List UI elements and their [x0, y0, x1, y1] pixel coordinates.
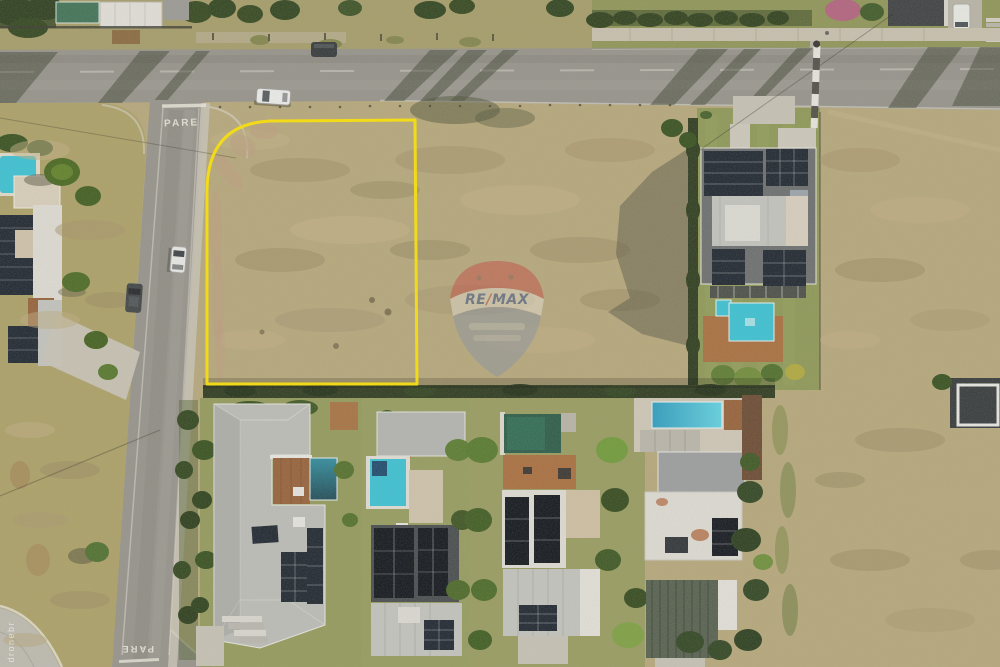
- photo-grain-overlay: [0, 0, 1000, 667]
- scene-canvas: PARE PARE: [0, 0, 1000, 667]
- photo-credit-watermark: dronebr: [6, 621, 16, 663]
- aerial-photo-scene: PARE PARE: [0, 0, 1000, 667]
